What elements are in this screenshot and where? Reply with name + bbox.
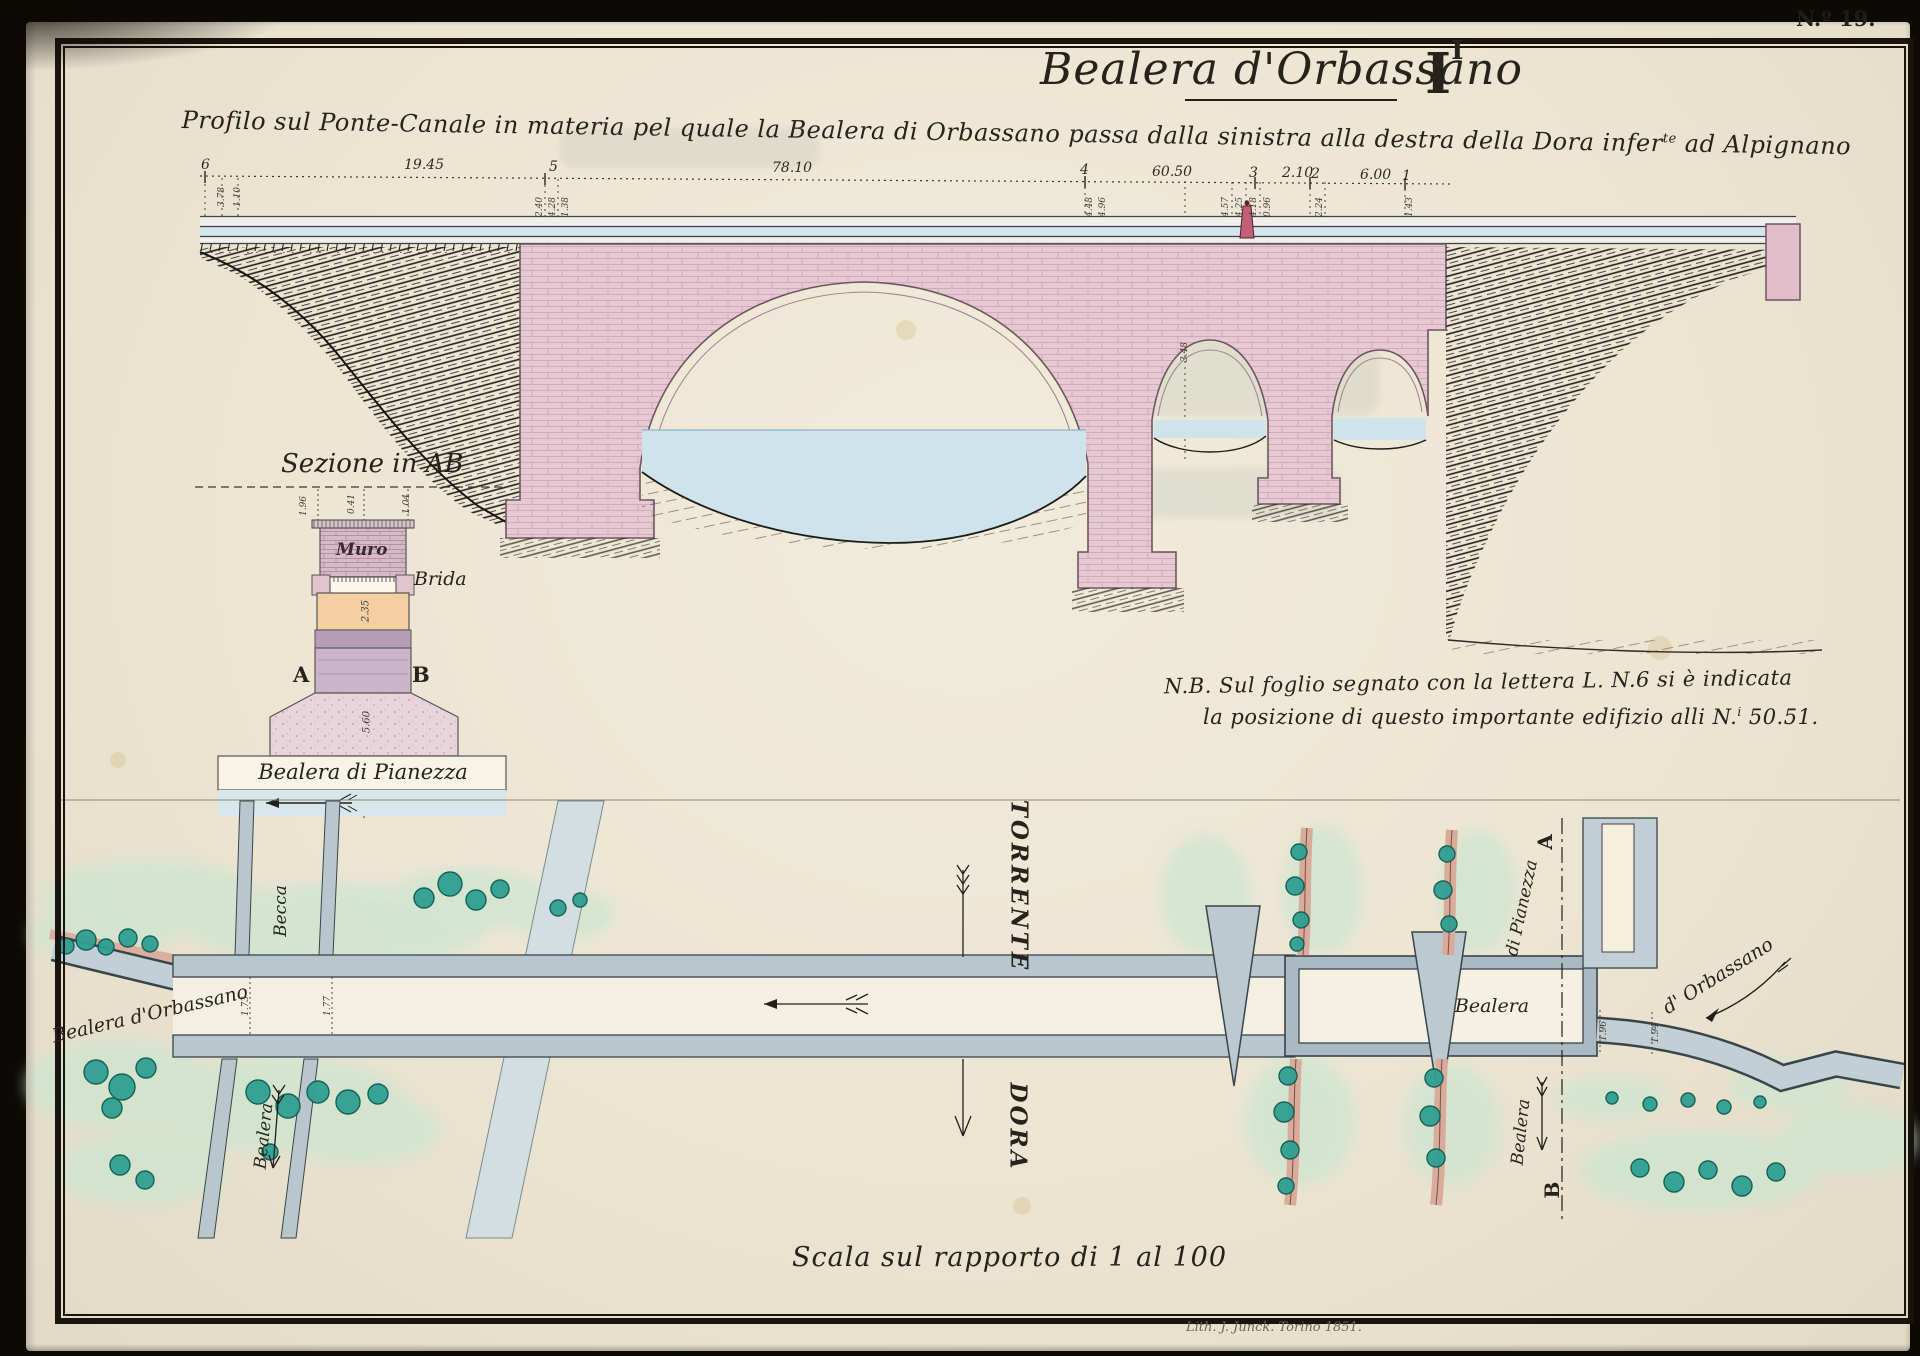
aqueduct-deck (200, 216, 1796, 244)
dim-label: 5 (549, 159, 558, 175)
note-line-2: la posizione di questo importante edifiz… (1203, 705, 1819, 729)
section-point-b: B (412, 662, 430, 687)
dim-label: 1.43 (1405, 197, 1415, 217)
exit-channel (1597, 1030, 1902, 1078)
figure-code: II (1425, 36, 1463, 107)
plan-drawing (25, 800, 1920, 1238)
dim-label: 6 (201, 157, 210, 173)
canal-plan (173, 955, 1295, 1057)
dim-label: 4.96 (1098, 197, 1108, 217)
plan-point-a: A (1533, 834, 1557, 850)
dim-label: 0.96 (1263, 197, 1273, 217)
figure-code-sup: I (1451, 36, 1463, 66)
plate-number: N.º 19. (1796, 6, 1876, 31)
dim-label: 1.94 (1651, 1023, 1661, 1043)
scale-note: Scala sul rapporto di 1 al 100 (792, 1242, 1227, 1273)
sluice-channel (1583, 818, 1657, 968)
dim-label: 4.57 (1221, 197, 1231, 217)
dim-label: 1.38 (561, 197, 571, 217)
dim-label: 1.73 (241, 996, 251, 1016)
lithographer-credit: Lith. J. Junck. Torino 1851. (1186, 1320, 1362, 1335)
section-shaft (315, 648, 411, 693)
right-cliff (1446, 247, 1822, 654)
section-brida-label: Brida (414, 568, 467, 590)
dim-label: 2.10 (1282, 165, 1313, 181)
right-terminal-block (1766, 224, 1800, 300)
dim-label: 1.10 (233, 187, 243, 207)
dim-label: 2 (1311, 166, 1320, 182)
dim-label: 2.40 (535, 197, 545, 217)
dim-label: 60.50 (1152, 164, 1192, 180)
dim-label: 1.96 (299, 496, 309, 516)
section-point-a: A (293, 662, 309, 687)
dim-label: 3.48 (1180, 342, 1190, 362)
dim-label: 6.00 (1360, 167, 1391, 183)
datum-line (200, 176, 1450, 184)
plan-label-bealera-canal: Bealera (1455, 995, 1529, 1017)
dim-label: 1 (1402, 168, 1411, 184)
dim-label: 4.25 (1235, 197, 1245, 217)
dim-label: 78.10 (772, 160, 812, 176)
dim-label: 3 (1249, 165, 1258, 181)
title-underline (1185, 99, 1397, 101)
section-canal-water (218, 790, 506, 816)
figure-code-main: I (1425, 41, 1451, 107)
dim-label: 1.04 (402, 494, 412, 514)
dim-label: 4.28 (548, 197, 558, 217)
left-cliff (200, 244, 522, 536)
section-canal-label: Bealera di Pianezza (232, 760, 494, 784)
dim-label: 1.96 (1599, 1021, 1609, 1041)
section-muro-label: Muro (336, 540, 387, 560)
dim-label: 3.78 (217, 187, 227, 207)
plan-label-torrente: TORRENTE (1006, 800, 1033, 973)
dim-label: 4 (1080, 162, 1089, 178)
dim-label: 4.18 (1249, 197, 1259, 217)
plan-label-becca: Becca (271, 885, 291, 937)
dim-label: 5.60 (362, 711, 373, 733)
dim-label: 4.48 (1085, 197, 1095, 217)
plan-point-b: B (1540, 1182, 1564, 1199)
dim-label: 19.45 (404, 157, 444, 173)
plate-page: N.º 19. Bealera d'Orbassano II Profilo s… (0, 0, 1920, 1356)
plan-label-dora: DORA (1005, 1083, 1032, 1172)
dim-label: 2.24 (1315, 197, 1325, 217)
section-title: Sezione in AB (281, 449, 463, 479)
dim-label: 1.77 (323, 996, 333, 1016)
dim-label: 0.41 (347, 494, 357, 514)
dim-label: 2.35 (361, 600, 372, 622)
